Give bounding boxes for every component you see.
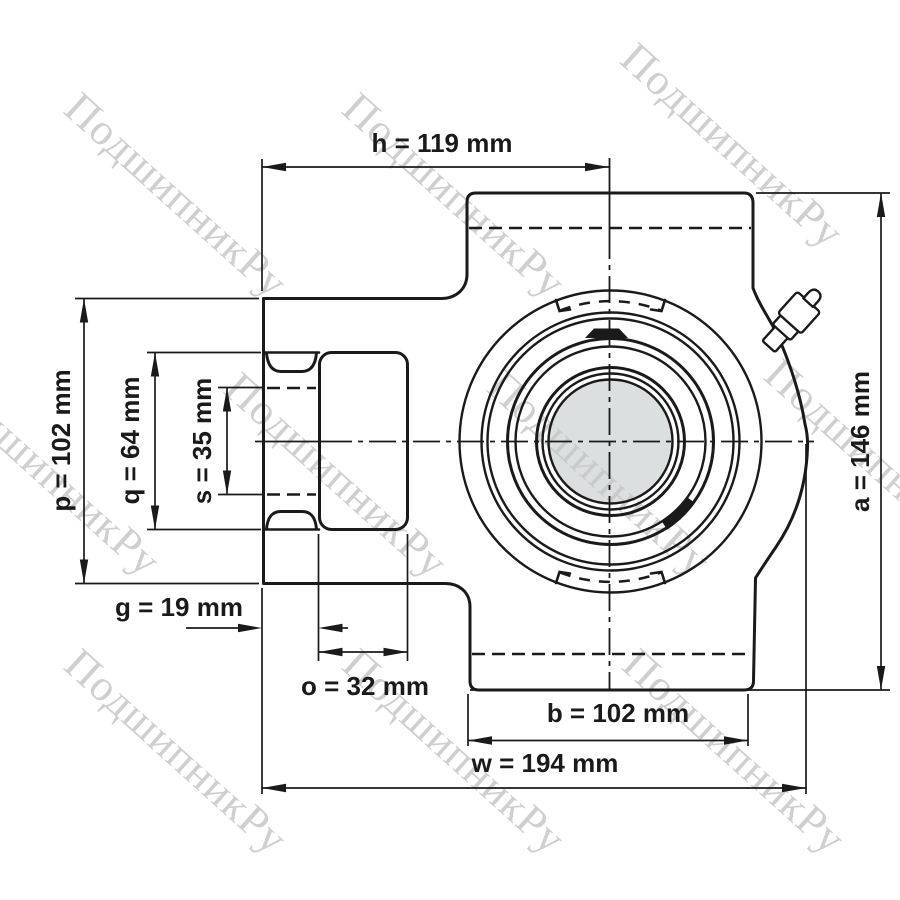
dim-o-label: o = 32 mm xyxy=(301,671,429,701)
dim-s-arrow-bottom xyxy=(223,471,231,495)
cover-slot-dashed-arc-top xyxy=(560,301,661,310)
dim-q-arrow-bottom xyxy=(151,506,159,530)
watermark-text: ПодшипникРу xyxy=(215,363,457,588)
watermark-text: ПодшипникРу xyxy=(613,639,855,864)
dim-a-arrow-top xyxy=(877,193,885,217)
dim-b-label: b = 102 mm xyxy=(547,698,689,728)
boss-top-face xyxy=(267,353,317,372)
slot-end-tick xyxy=(556,572,570,583)
dim-p-arrow-bottom xyxy=(80,560,88,584)
dim-h-arrow-left xyxy=(262,163,286,171)
watermark-text: ПодшипникРу xyxy=(755,349,900,574)
dim-g-label: g = 19 mm xyxy=(115,592,243,622)
dim-g-arrow-left xyxy=(238,624,262,632)
slot-end-tick xyxy=(651,300,665,311)
technical-drawing-canvas: ПодшипникРу ПодшипникРу ПодшипникРу Подш… xyxy=(0,0,900,900)
cover-slot-dashed-arc-bottom xyxy=(560,573,661,582)
dim-s-label: s = 35 mm xyxy=(187,378,217,504)
slot-end-tick xyxy=(651,572,665,583)
dim-h-label: h = 119 mm xyxy=(372,128,513,158)
dim-q-arrow-top xyxy=(151,353,159,377)
set-screw xyxy=(585,329,628,339)
dim-o-arrow-left xyxy=(319,648,343,656)
dim-g-arrow-right xyxy=(319,624,343,632)
dim-a-arrow-bottom xyxy=(877,666,885,690)
dim-p-label: p = 102 mm xyxy=(46,369,76,511)
watermark-text: ПодшипникРу xyxy=(333,83,575,308)
dim-w-label: w = 194 mm xyxy=(471,748,619,778)
boss-bottom-face xyxy=(267,512,317,530)
dim-p-arrow-top xyxy=(80,299,88,323)
dim-a-label: a = 146 mm xyxy=(845,371,875,512)
watermark-text: ПодшипникРу xyxy=(611,33,853,258)
slot-end-tick xyxy=(556,300,570,311)
dim-h-arrow-right xyxy=(585,163,609,171)
dim-q-label: q = 64 mm xyxy=(115,377,145,505)
dim-w-arrow-left xyxy=(262,784,286,792)
drawing-page: ПодшипникРу ПодшипникРу ПодшипникРу Подш… xyxy=(0,0,900,900)
dim-o-arrow-right xyxy=(384,648,408,656)
